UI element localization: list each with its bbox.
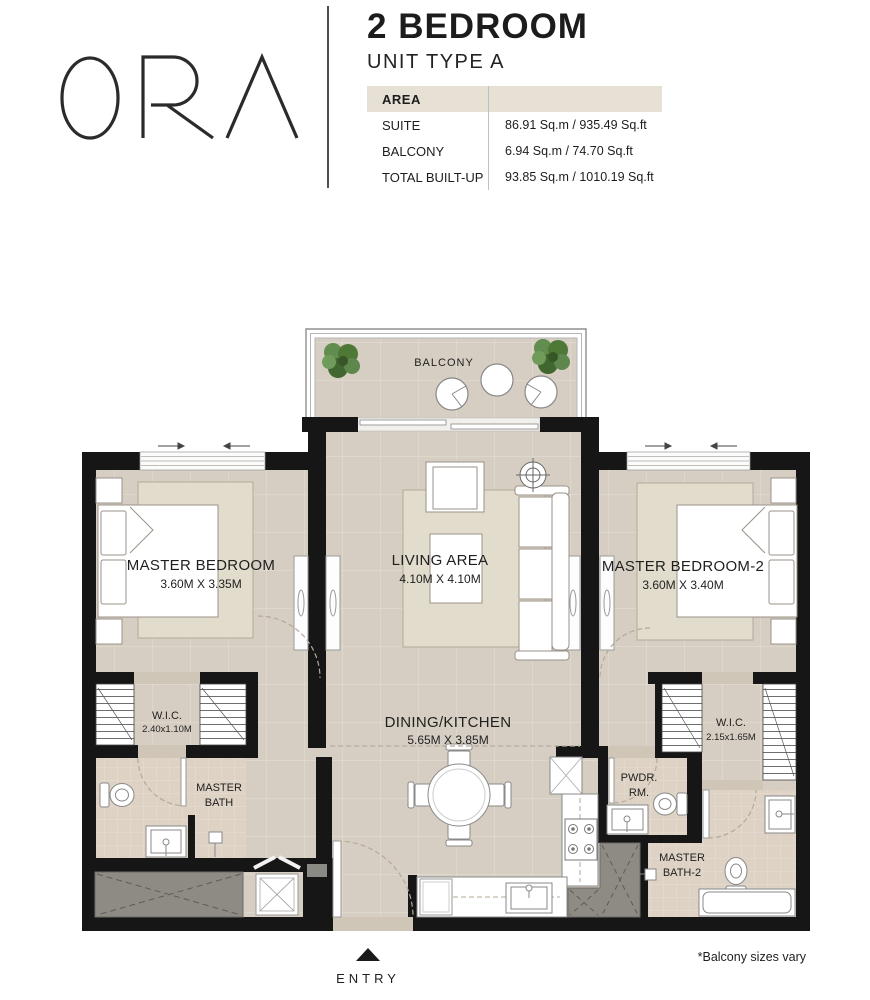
- nightstand: [771, 478, 796, 503]
- bath2-door-leaf: [703, 790, 709, 838]
- balcony-slider: [357, 418, 540, 431]
- nightstand: [96, 478, 122, 503]
- balcony-footnote: *Balcony sizes vary: [698, 950, 807, 964]
- shower-mixer-icon: [645, 869, 656, 880]
- sofa-cushion: [519, 601, 552, 651]
- floorplan-page: 2 BEDROOM UNIT TYPE A AREA SUITE 86.91 S…: [0, 0, 870, 1000]
- dining-kitchen-dims: 5.65M X 3.85M: [407, 733, 488, 747]
- chair-back: [505, 782, 511, 808]
- toilet-tank: [100, 783, 109, 807]
- chair-back: [446, 840, 472, 846]
- living-area-label: LIVING AREA: [392, 552, 489, 569]
- entry-door-leaf: [333, 841, 341, 917]
- pwdr-door-leaf: [609, 758, 614, 803]
- tv: [433, 467, 477, 509]
- bath1-door-leaf: [181, 758, 186, 806]
- chair-back: [408, 782, 414, 808]
- dining-kitchen-label: DINING/KITCHEN: [385, 714, 512, 731]
- master-bath-2-label-1: MASTER: [659, 852, 705, 864]
- master-bath-label-1: MASTER: [196, 782, 242, 794]
- pillow: [769, 511, 794, 555]
- master-bedroom-2-dims: 3.60M X 3.40M: [642, 578, 723, 592]
- entry-marker: ENTRY: [336, 948, 400, 986]
- shower-mixer-icon: [209, 832, 222, 843]
- entry-closet-vent: [307, 864, 327, 877]
- bath-partition: [188, 815, 195, 858]
- entry-arrow-icon: [356, 948, 380, 961]
- sofa-back: [552, 493, 569, 650]
- wic1-label: W.I.C.: [152, 710, 182, 722]
- pillow: [101, 511, 126, 555]
- dishwasher: [420, 879, 452, 915]
- master-bath-label-2: BATH: [205, 797, 234, 809]
- kitchen-sink: [506, 883, 552, 913]
- stove-icon: [565, 819, 597, 860]
- sofa-arm: [515, 651, 569, 660]
- pwdr-label-1: PWDR.: [621, 772, 658, 784]
- master-bedroom-label: MASTER BEDROOM: [127, 557, 275, 574]
- pillow: [769, 560, 794, 604]
- balcony-table: [481, 364, 513, 396]
- wic1-dims: 2.40x1.10M: [142, 724, 192, 735]
- master-bedroom-2-label: MASTER BEDROOM-2: [602, 558, 764, 575]
- pillow: [101, 560, 126, 604]
- entry-label: ENTRY: [336, 971, 400, 986]
- balcony-label: BALCONY: [414, 357, 474, 369]
- floor-plan: BALCONY MASTER BEDROOM 3.60M X 3.35M LIV…: [0, 0, 870, 1000]
- sofa-cushion: [519, 497, 552, 547]
- nightstand: [771, 619, 796, 644]
- wic2-label: W.I.C.: [716, 717, 746, 729]
- nightstand: [96, 619, 122, 644]
- wic2-dims: 2.15x1.65M: [706, 732, 756, 743]
- sofa-cushion: [519, 549, 552, 599]
- master-bath-2-label-2: BATH-2: [663, 867, 701, 879]
- living-area-dims: 4.10M X 4.10M: [399, 572, 480, 586]
- toilet-tank: [677, 793, 687, 815]
- pwdr-label-2: RM.: [629, 787, 649, 799]
- master-bedroom-dims: 3.60M X 3.35M: [160, 577, 241, 591]
